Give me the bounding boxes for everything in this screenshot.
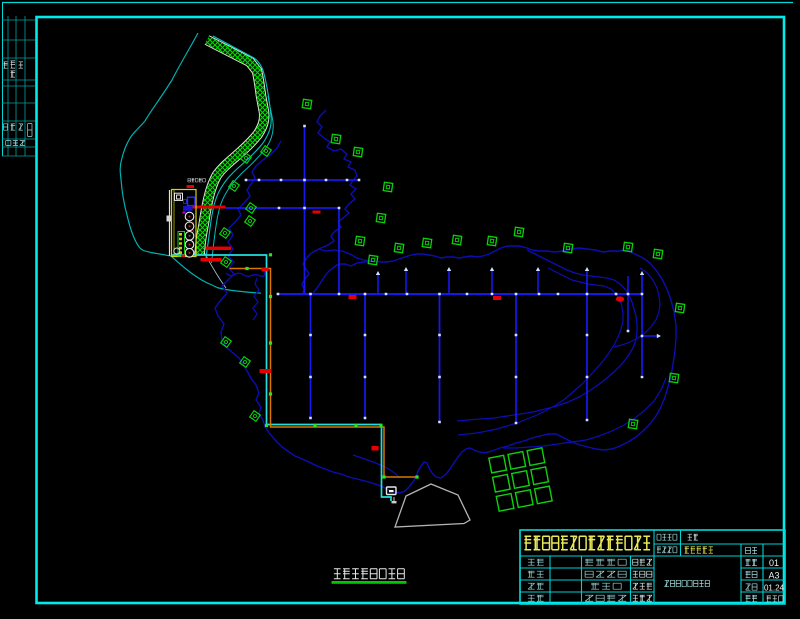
svg-text:A3: A3 — [768, 571, 779, 581]
svg-text:01: 01 — [769, 558, 779, 568]
svg-text:01.24: 01.24 — [764, 584, 785, 593]
